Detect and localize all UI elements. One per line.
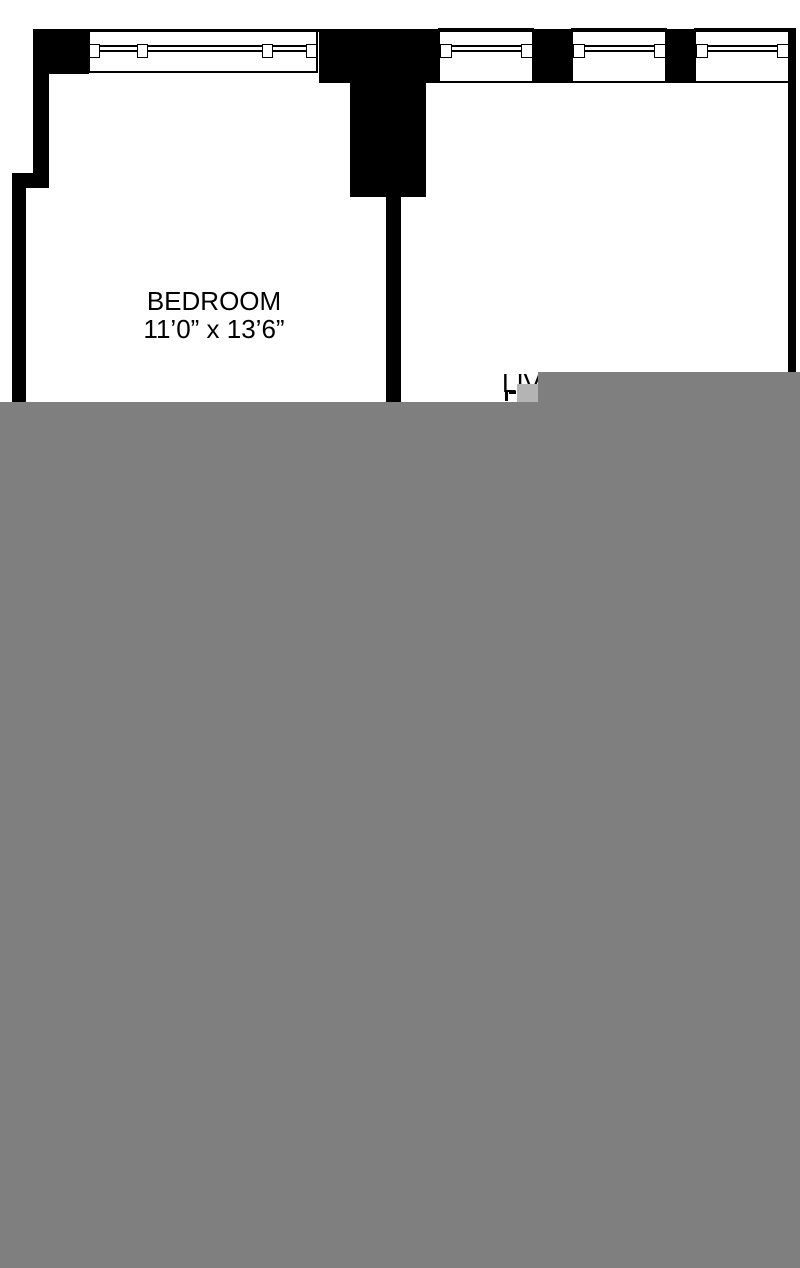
living-room-window-3 [694, 28, 790, 83]
living-room-window-3-glazing [697, 45, 787, 52]
window-mullion [137, 44, 148, 58]
bedroom-living-wall-thin [386, 197, 401, 402]
window-mullion [262, 44, 273, 58]
living-room-window-2 [571, 28, 667, 83]
window-header-wall [319, 29, 440, 83]
window-pillar-2 [667, 29, 694, 83]
exterior-wall-corner [33, 29, 89, 74]
window-mullion [654, 44, 666, 58]
living-room-window-1 [438, 28, 534, 83]
window-pillar-1 [533, 29, 572, 83]
window-mullion [89, 44, 100, 58]
unloaded-region-right [538, 372, 800, 402]
unloaded-region-light [517, 384, 538, 402]
window-mullion [440, 44, 452, 58]
exterior-wall-left-upper [33, 70, 49, 188]
floor-plan-image: BEDROOM 11’0” x 13’6” LIVING ROOM [0, 0, 800, 1268]
exterior-wall-right [788, 28, 796, 372]
window-mullion [696, 44, 708, 58]
bedroom-dimensions: 11’0” x 13’6” [104, 316, 324, 343]
bedroom-window-glazing [90, 45, 316, 52]
exterior-wall-left-lower [12, 186, 26, 402]
living-room-window-1-glazing [441, 45, 531, 52]
window-mullion [521, 44, 533, 58]
text-fragment [505, 391, 508, 401]
text-fragment [509, 391, 516, 394]
window-mullion [306, 44, 317, 58]
unloaded-region-main [0, 402, 800, 1268]
window-mullion [573, 44, 585, 58]
bedroom-label: BEDROOM [104, 288, 324, 315]
living-room-window-2-glazing [574, 45, 664, 52]
bedroom-living-wall-thick [350, 80, 426, 197]
